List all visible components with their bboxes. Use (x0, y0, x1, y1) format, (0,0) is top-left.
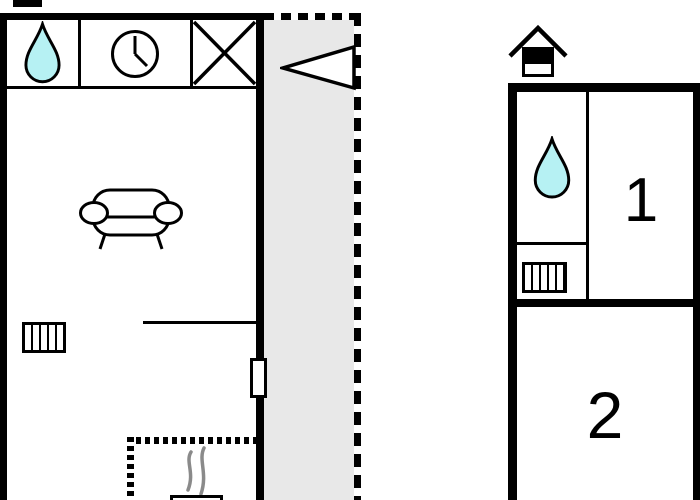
terrace-area (264, 20, 354, 500)
fireplace-hatch-top (127, 437, 256, 444)
steam-icon (181, 446, 213, 496)
upper-floor-house-icon (506, 23, 568, 79)
water-drop-icon (531, 136, 573, 199)
upper-wall-top (508, 83, 700, 92)
icon-row-bottom-line (7, 86, 256, 89)
clock-icon (110, 29, 160, 79)
window-cross-icon (193, 20, 256, 86)
room-2-number: 2 (587, 382, 624, 448)
room-1-number: 1 (624, 170, 658, 232)
radiator-icon (522, 262, 567, 293)
wall-top (0, 13, 264, 20)
upper-wall-left (508, 83, 517, 500)
upper-wall-right (693, 83, 700, 500)
floor-plan-canvas: 1 2 (0, 0, 700, 500)
wall-right (256, 13, 264, 500)
wall-left (0, 13, 7, 500)
upper-partition-horizontal (517, 242, 586, 245)
upper-wall-middle (508, 299, 700, 307)
entrance-arrow-icon (280, 44, 356, 91)
water-drop-icon (23, 21, 62, 84)
room-2-label: 2 (517, 307, 693, 500)
door-icon (250, 358, 267, 398)
interior-wall (143, 321, 256, 324)
fireplace-hatch-left (127, 437, 134, 500)
sofa-icon (78, 186, 184, 252)
icon-row-divider-1 (78, 20, 81, 86)
ground-floor-symbol-partial (13, 0, 42, 7)
radiator-icon (22, 322, 66, 353)
room-1-label: 1 (589, 92, 693, 299)
terrace-dashed-border-top (264, 13, 361, 20)
stove-icon (170, 495, 223, 500)
